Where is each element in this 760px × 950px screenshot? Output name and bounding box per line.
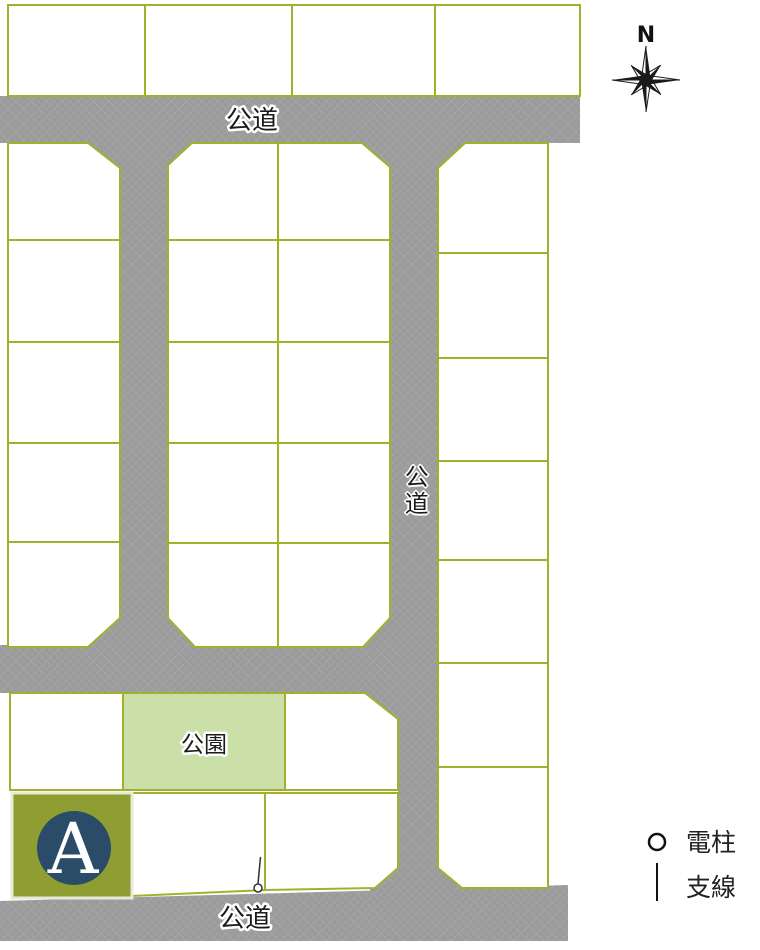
road-label-right: 公道	[401, 464, 426, 518]
plot-mid-9	[168, 543, 278, 647]
plot-bottom-right	[265, 793, 398, 890]
plot-right-1	[438, 143, 548, 253]
plot-mid-4	[278, 240, 390, 342]
compass-rose: N	[612, 23, 680, 112]
legend-guy-wire-label: 支線	[686, 873, 736, 902]
utility-pole-circle	[254, 884, 262, 892]
plot-mid-2	[278, 143, 390, 240]
plot-top-4	[435, 5, 580, 96]
plot-right-3	[438, 358, 548, 461]
plot-left-1	[8, 143, 120, 240]
plot-top-3	[292, 5, 435, 96]
plot-top-1	[8, 5, 145, 96]
legend-utility-pole-label: 電柱	[686, 828, 736, 857]
plot-mid-1	[168, 143, 278, 240]
road-left-vertical	[120, 143, 168, 692]
plot-parkrow-right	[285, 693, 398, 790]
park-label: 公園	[181, 732, 227, 758]
plot-left-3	[8, 342, 120, 443]
plot-mid-10	[278, 543, 390, 647]
plot-left-4	[8, 443, 120, 542]
plot-bottom-middle	[132, 793, 265, 896]
plot-right-5	[438, 560, 548, 663]
plot-a: A	[12, 793, 132, 898]
road-label-bottom: 公道	[219, 904, 271, 934]
site-plan-map: 公園 A 公道 公道 N 電柱 支線	[0, 0, 760, 950]
subdivision-site-plan: 公園 A 公道 公道 N 電柱 支線 公道	[0, 0, 760, 950]
plot-right-2	[438, 253, 548, 358]
plot-mid-3	[168, 240, 278, 342]
park-area: 公園	[123, 693, 285, 790]
plot-parkrow-left	[10, 693, 123, 790]
plot-top-2	[145, 5, 292, 96]
plot-left-2	[8, 240, 120, 342]
road-label-top: 公道	[226, 106, 278, 136]
plot-mid-8	[278, 443, 390, 543]
plot-a-label: A	[47, 808, 100, 890]
legend: 電柱 支線	[649, 828, 736, 902]
plot-mid-7	[168, 443, 278, 543]
plot-right-7	[438, 767, 548, 888]
compass-north-label: N	[637, 23, 655, 48]
plot-left-5	[8, 542, 120, 647]
plot-right-6	[438, 663, 548, 767]
legend-utility-pole-icon	[649, 834, 665, 850]
plot-right-4	[438, 461, 548, 560]
plot-mid-5	[168, 342, 278, 443]
plot-mid-6	[278, 342, 390, 443]
